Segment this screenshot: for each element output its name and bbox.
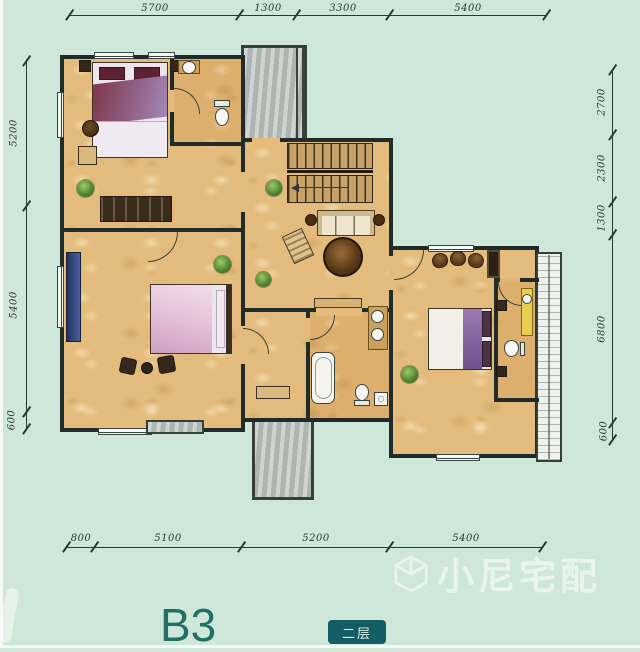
dim-label: 2300 xyxy=(597,154,608,181)
closet-icon xyxy=(100,196,172,222)
bed-blanket xyxy=(463,309,482,369)
dim-label: 5200 xyxy=(302,533,329,544)
dimension-line-top xyxy=(70,15,547,16)
dim-label: 5400 xyxy=(454,3,481,14)
bed-pillow xyxy=(482,341,491,366)
bench-icon xyxy=(256,386,290,399)
wardrobe-icon xyxy=(487,250,500,278)
balcony-railing-line xyxy=(302,48,304,138)
chair-icon xyxy=(82,120,99,137)
window xyxy=(436,454,480,461)
dimension-line-left xyxy=(26,61,27,429)
door-opening xyxy=(239,172,247,212)
interior-wall xyxy=(170,142,245,146)
watermark: 小尼宅配 xyxy=(392,548,601,598)
dim-label: 800 xyxy=(71,533,92,544)
bed-icon xyxy=(150,284,232,354)
bed-pillow xyxy=(216,290,226,347)
chair-icon xyxy=(450,251,466,266)
nightstand-icon xyxy=(496,366,507,377)
sink-icon xyxy=(371,328,384,341)
bed-sheet xyxy=(429,309,463,369)
dim-label: 5200 xyxy=(9,119,20,146)
dim-label: 600 xyxy=(7,410,18,431)
bed-icon xyxy=(92,62,168,158)
stairs-arrow-icon xyxy=(291,184,299,192)
bathtub-icon xyxy=(311,352,335,404)
interior-wall xyxy=(170,112,174,146)
bay-window-bottom xyxy=(146,420,204,434)
edge-highlight-left xyxy=(0,0,3,648)
window xyxy=(98,428,152,435)
unit-title: B3 xyxy=(160,598,216,652)
bed-blanket xyxy=(151,285,212,353)
toilet-tank xyxy=(520,342,525,356)
nightstand-icon xyxy=(496,300,507,311)
bathtub-inner xyxy=(315,357,332,399)
plant-icon xyxy=(401,366,418,383)
chair-icon xyxy=(119,357,138,376)
bed-headboard xyxy=(226,285,231,353)
dim-label: 1300 xyxy=(254,3,281,14)
dim-label: 1300 xyxy=(597,204,608,231)
bed-sheet xyxy=(93,121,167,157)
balcony-right-rail-line xyxy=(548,255,550,459)
window xyxy=(57,266,64,328)
sink-icon xyxy=(522,294,532,304)
plant-icon xyxy=(256,272,271,287)
dim-label: 600 xyxy=(599,421,610,442)
sofa-icon xyxy=(317,210,375,236)
nightstand-icon xyxy=(79,60,91,72)
wardrobe-icon xyxy=(66,252,81,342)
stairs-rail xyxy=(287,170,373,173)
plant-icon xyxy=(214,256,231,273)
floorplan-page: { "colors": { "background": "#cfe7d8", "… xyxy=(0,0,640,648)
stairs-upper-flight-icon xyxy=(287,143,373,169)
round-table-icon xyxy=(323,237,363,277)
window xyxy=(148,52,175,59)
side-table-icon xyxy=(78,146,97,165)
window xyxy=(57,92,64,138)
dim-label: 5400 xyxy=(452,533,479,544)
plant-icon xyxy=(77,180,94,197)
sink-icon xyxy=(182,61,196,74)
toilet-tank xyxy=(354,400,370,406)
terrace-bottom xyxy=(252,418,314,500)
washer-icon xyxy=(374,392,388,406)
dimension-line-right xyxy=(612,70,613,440)
bed-icon xyxy=(428,308,492,370)
stairs-lower-flight-icon xyxy=(287,175,373,203)
window xyxy=(94,52,134,59)
side-table-icon xyxy=(305,214,317,226)
watermark-text: 小尼宅配 xyxy=(437,546,601,600)
chair-icon xyxy=(157,355,177,375)
dim-label: 5100 xyxy=(154,533,181,544)
balcony-railing-line xyxy=(296,48,298,138)
floor-badge: 二层 xyxy=(328,620,386,644)
sideboard-icon xyxy=(314,298,362,308)
bed-blanket xyxy=(92,75,168,126)
interior-wall xyxy=(494,398,539,402)
watermark-logo-icon xyxy=(392,554,430,592)
plant-icon xyxy=(266,180,282,196)
interior-wall xyxy=(306,342,310,422)
toilet-tank xyxy=(214,100,230,107)
door-opening xyxy=(252,138,280,146)
dim-label: 5700 xyxy=(141,3,168,14)
dim-label: 6800 xyxy=(597,315,608,342)
sink-icon xyxy=(371,310,384,323)
dim-label: 2700 xyxy=(597,88,608,115)
dim-label: 5400 xyxy=(9,291,20,318)
dim-label: 3300 xyxy=(329,3,356,14)
stool-icon xyxy=(141,362,153,374)
window xyxy=(428,245,474,252)
stairs-direction-line xyxy=(299,187,349,188)
bed-pillow xyxy=(99,67,125,80)
bed-pillow xyxy=(482,311,491,336)
side-table-icon xyxy=(373,214,385,226)
